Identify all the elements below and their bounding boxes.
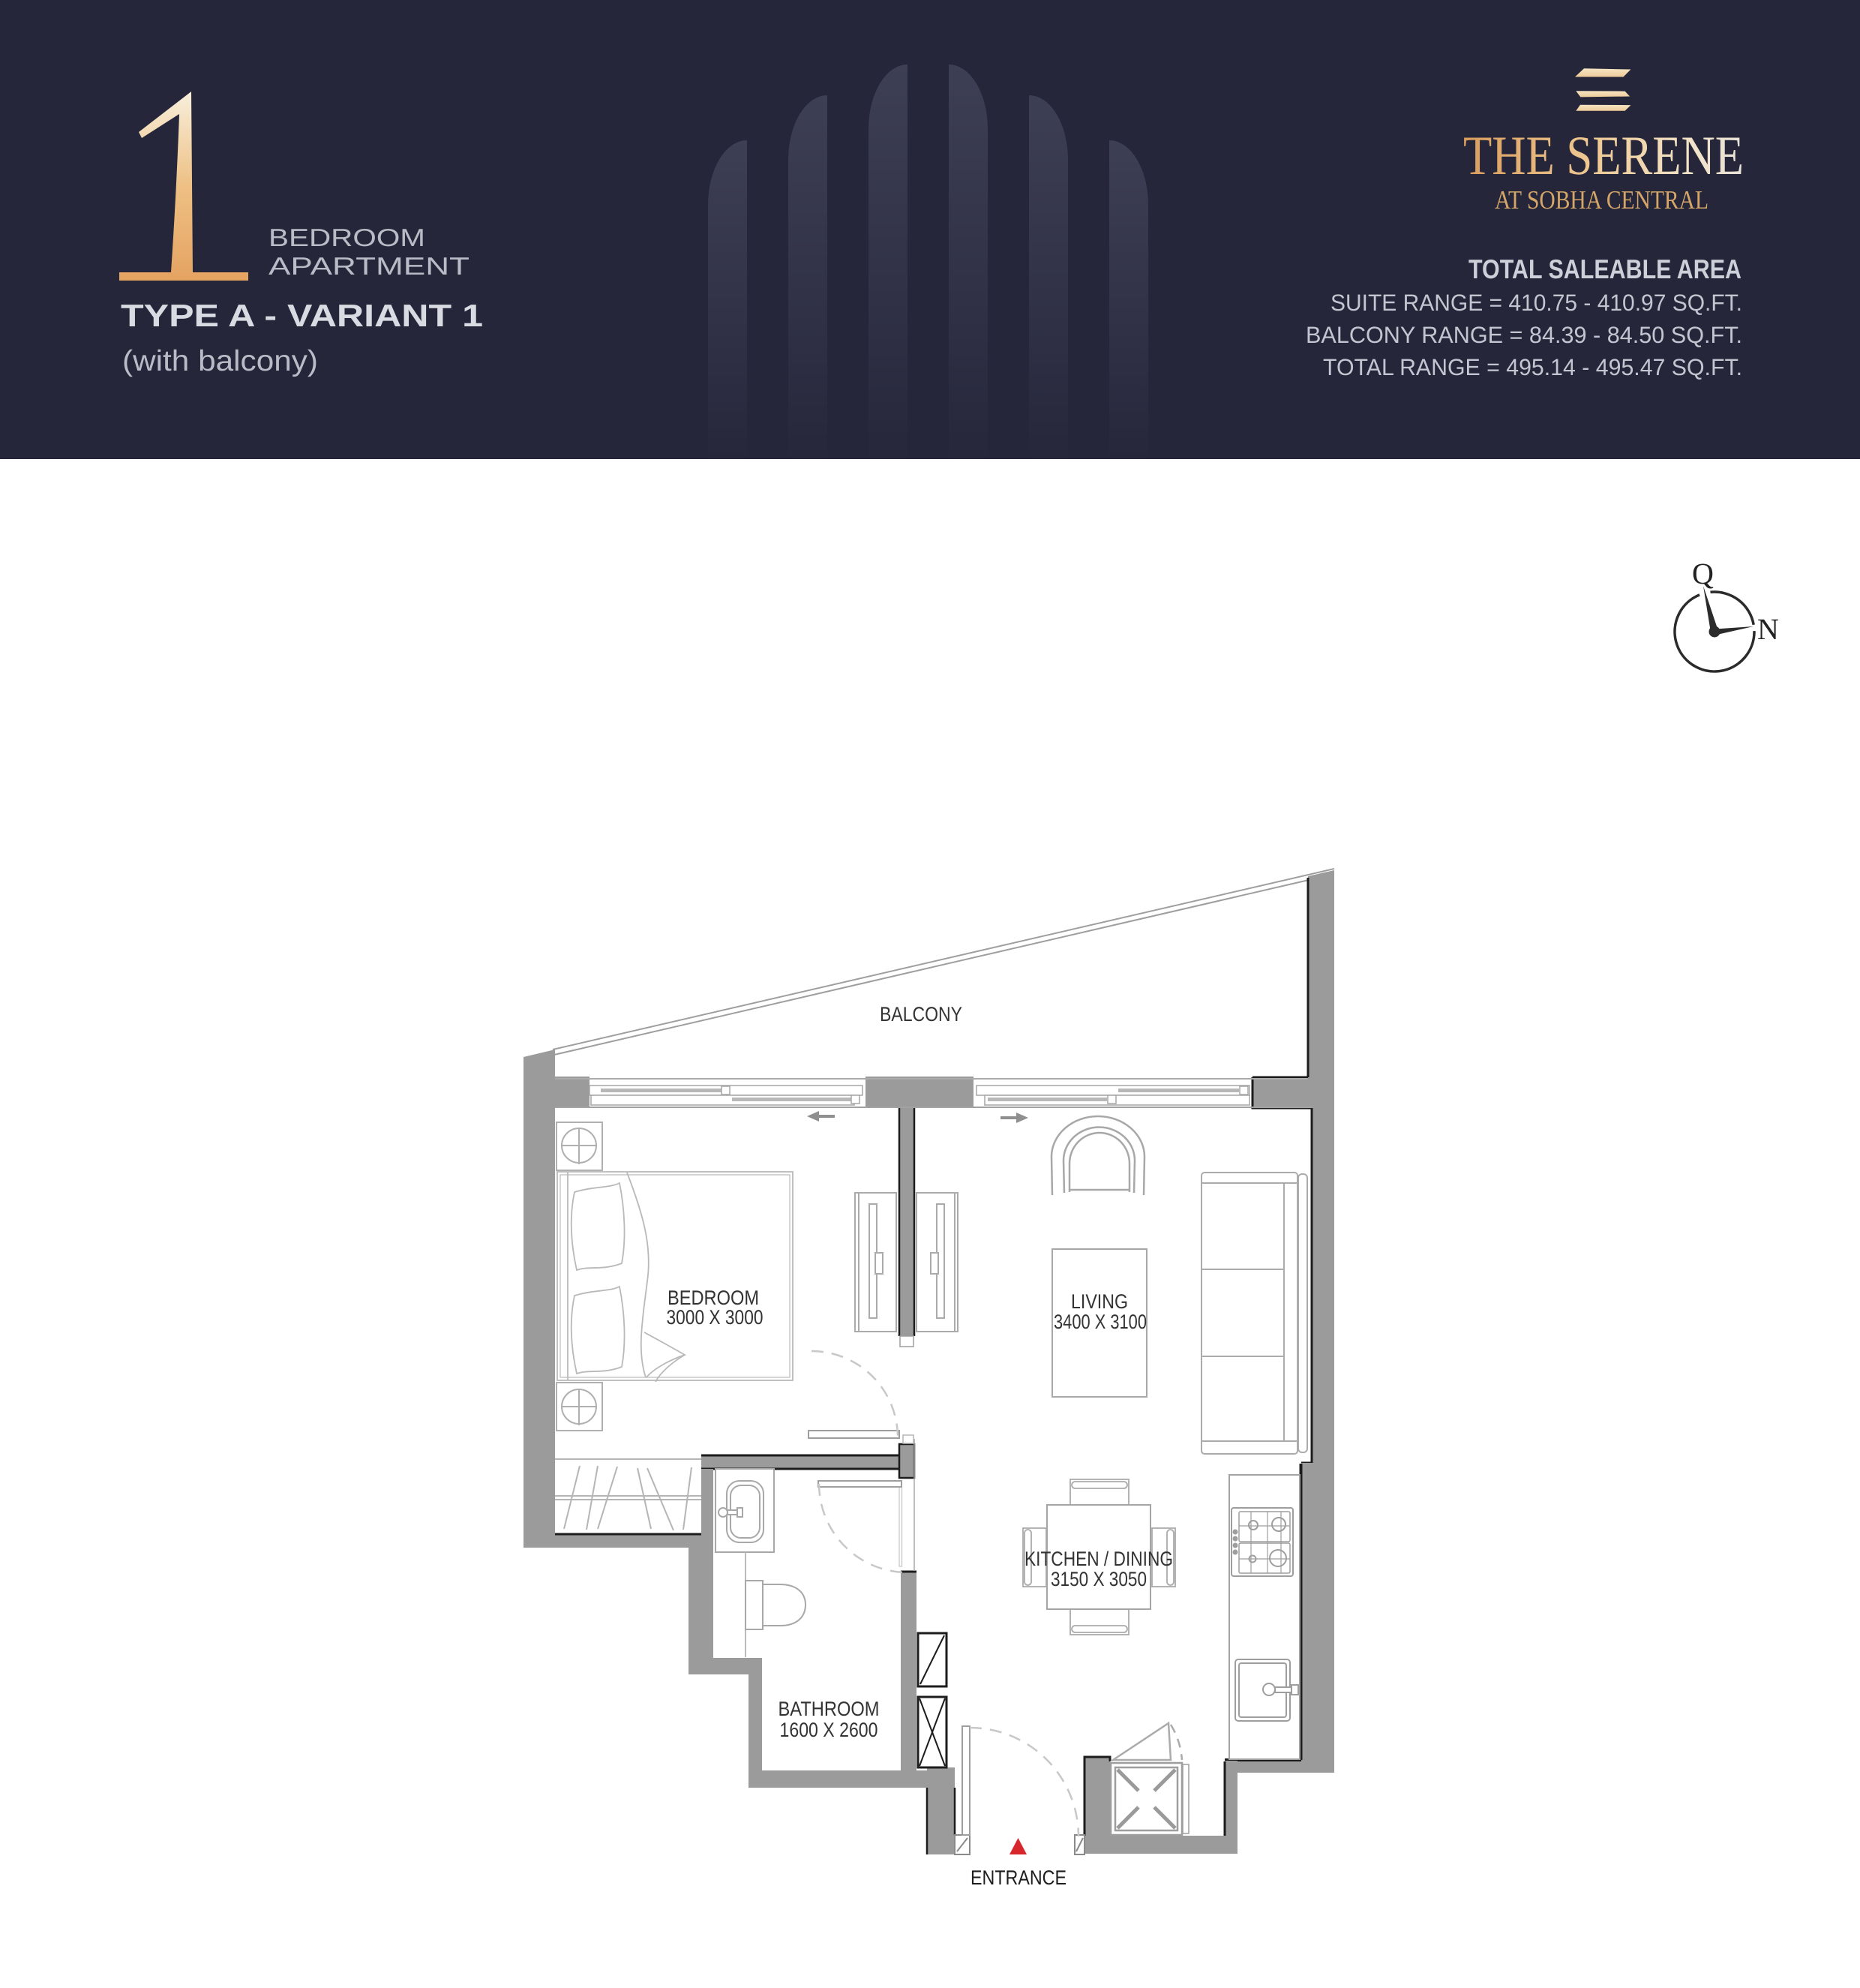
svg-text:AT SOBHA CENTRAL: AT SOBHA CENTRAL — [1495, 185, 1708, 215]
svg-text:TOTAL RANGE = 495.14 - 495.47: TOTAL RANGE = 495.14 - 495.47 SQ.FT. — [1323, 354, 1742, 380]
svg-text:KITCHEN / DINING: KITCHEN / DINING — [1024, 1548, 1173, 1570]
svg-text:3150 X 3050: 3150 X 3050 — [1051, 1568, 1147, 1590]
svg-text:ENTRANCE: ENTRANCE — [970, 1866, 1066, 1889]
svg-text:BEDROOM: BEDROOM — [268, 224, 425, 251]
svg-text:N: N — [1757, 612, 1779, 646]
svg-text:BALCONY RANGE = 84.39 - 84.50: BALCONY RANGE = 84.39 - 84.50 SQ.FT. — [1306, 322, 1742, 348]
svg-text:1600 X 2600: 1600 X 2600 — [780, 1719, 878, 1741]
svg-text:THE SERENE: THE SERENE — [1463, 125, 1744, 187]
svg-text:TOTAL SALEABLE AREA: TOTAL SALEABLE AREA — [1468, 254, 1741, 284]
svg-text:BATHROOM: BATHROOM — [778, 1698, 880, 1720]
svg-text:APARTMENT: APARTMENT — [268, 252, 469, 280]
svg-text:LIVING: LIVING — [1071, 1290, 1128, 1313]
svg-text:(with balcony): (with balcony) — [122, 345, 318, 377]
svg-text:Q: Q — [1692, 557, 1714, 590]
svg-text:BALCONY: BALCONY — [880, 1003, 962, 1026]
svg-text:TYPE A - VARIANT 1: TYPE A - VARIANT 1 — [121, 298, 483, 333]
svg-text:SUITE RANGE = 410.75 - 410.97: SUITE RANGE = 410.75 - 410.97 SQ.FT. — [1330, 290, 1742, 316]
svg-text:3000 X 3000: 3000 X 3000 — [667, 1306, 763, 1329]
svg-text:3400 X 3100: 3400 X 3100 — [1054, 1311, 1147, 1333]
